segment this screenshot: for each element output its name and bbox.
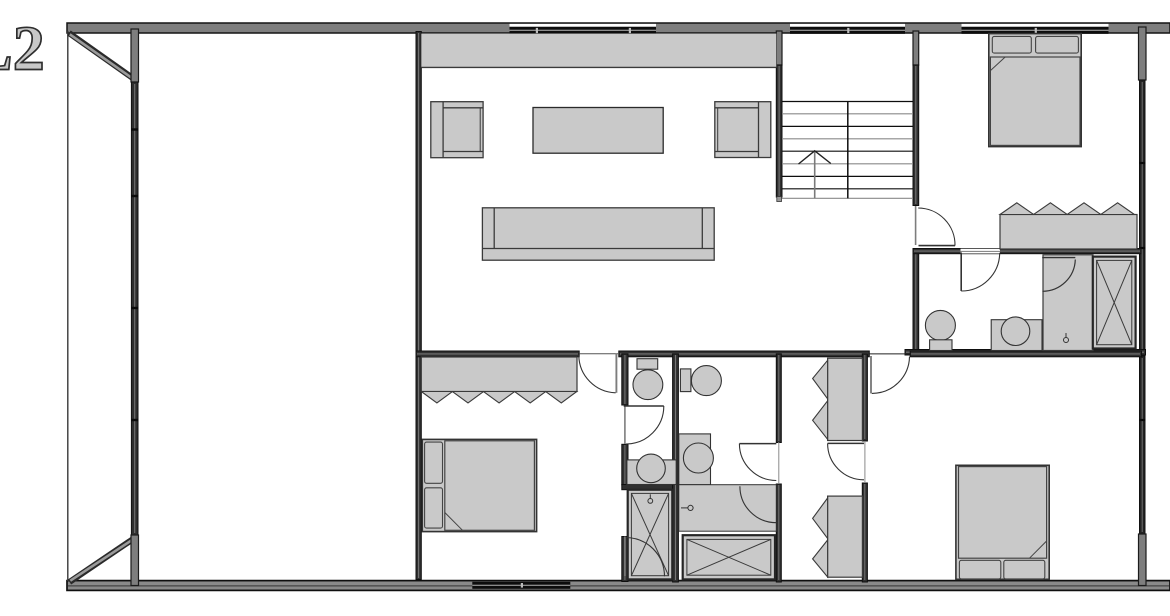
- svg-text:L2: L2: [0, 13, 45, 84]
